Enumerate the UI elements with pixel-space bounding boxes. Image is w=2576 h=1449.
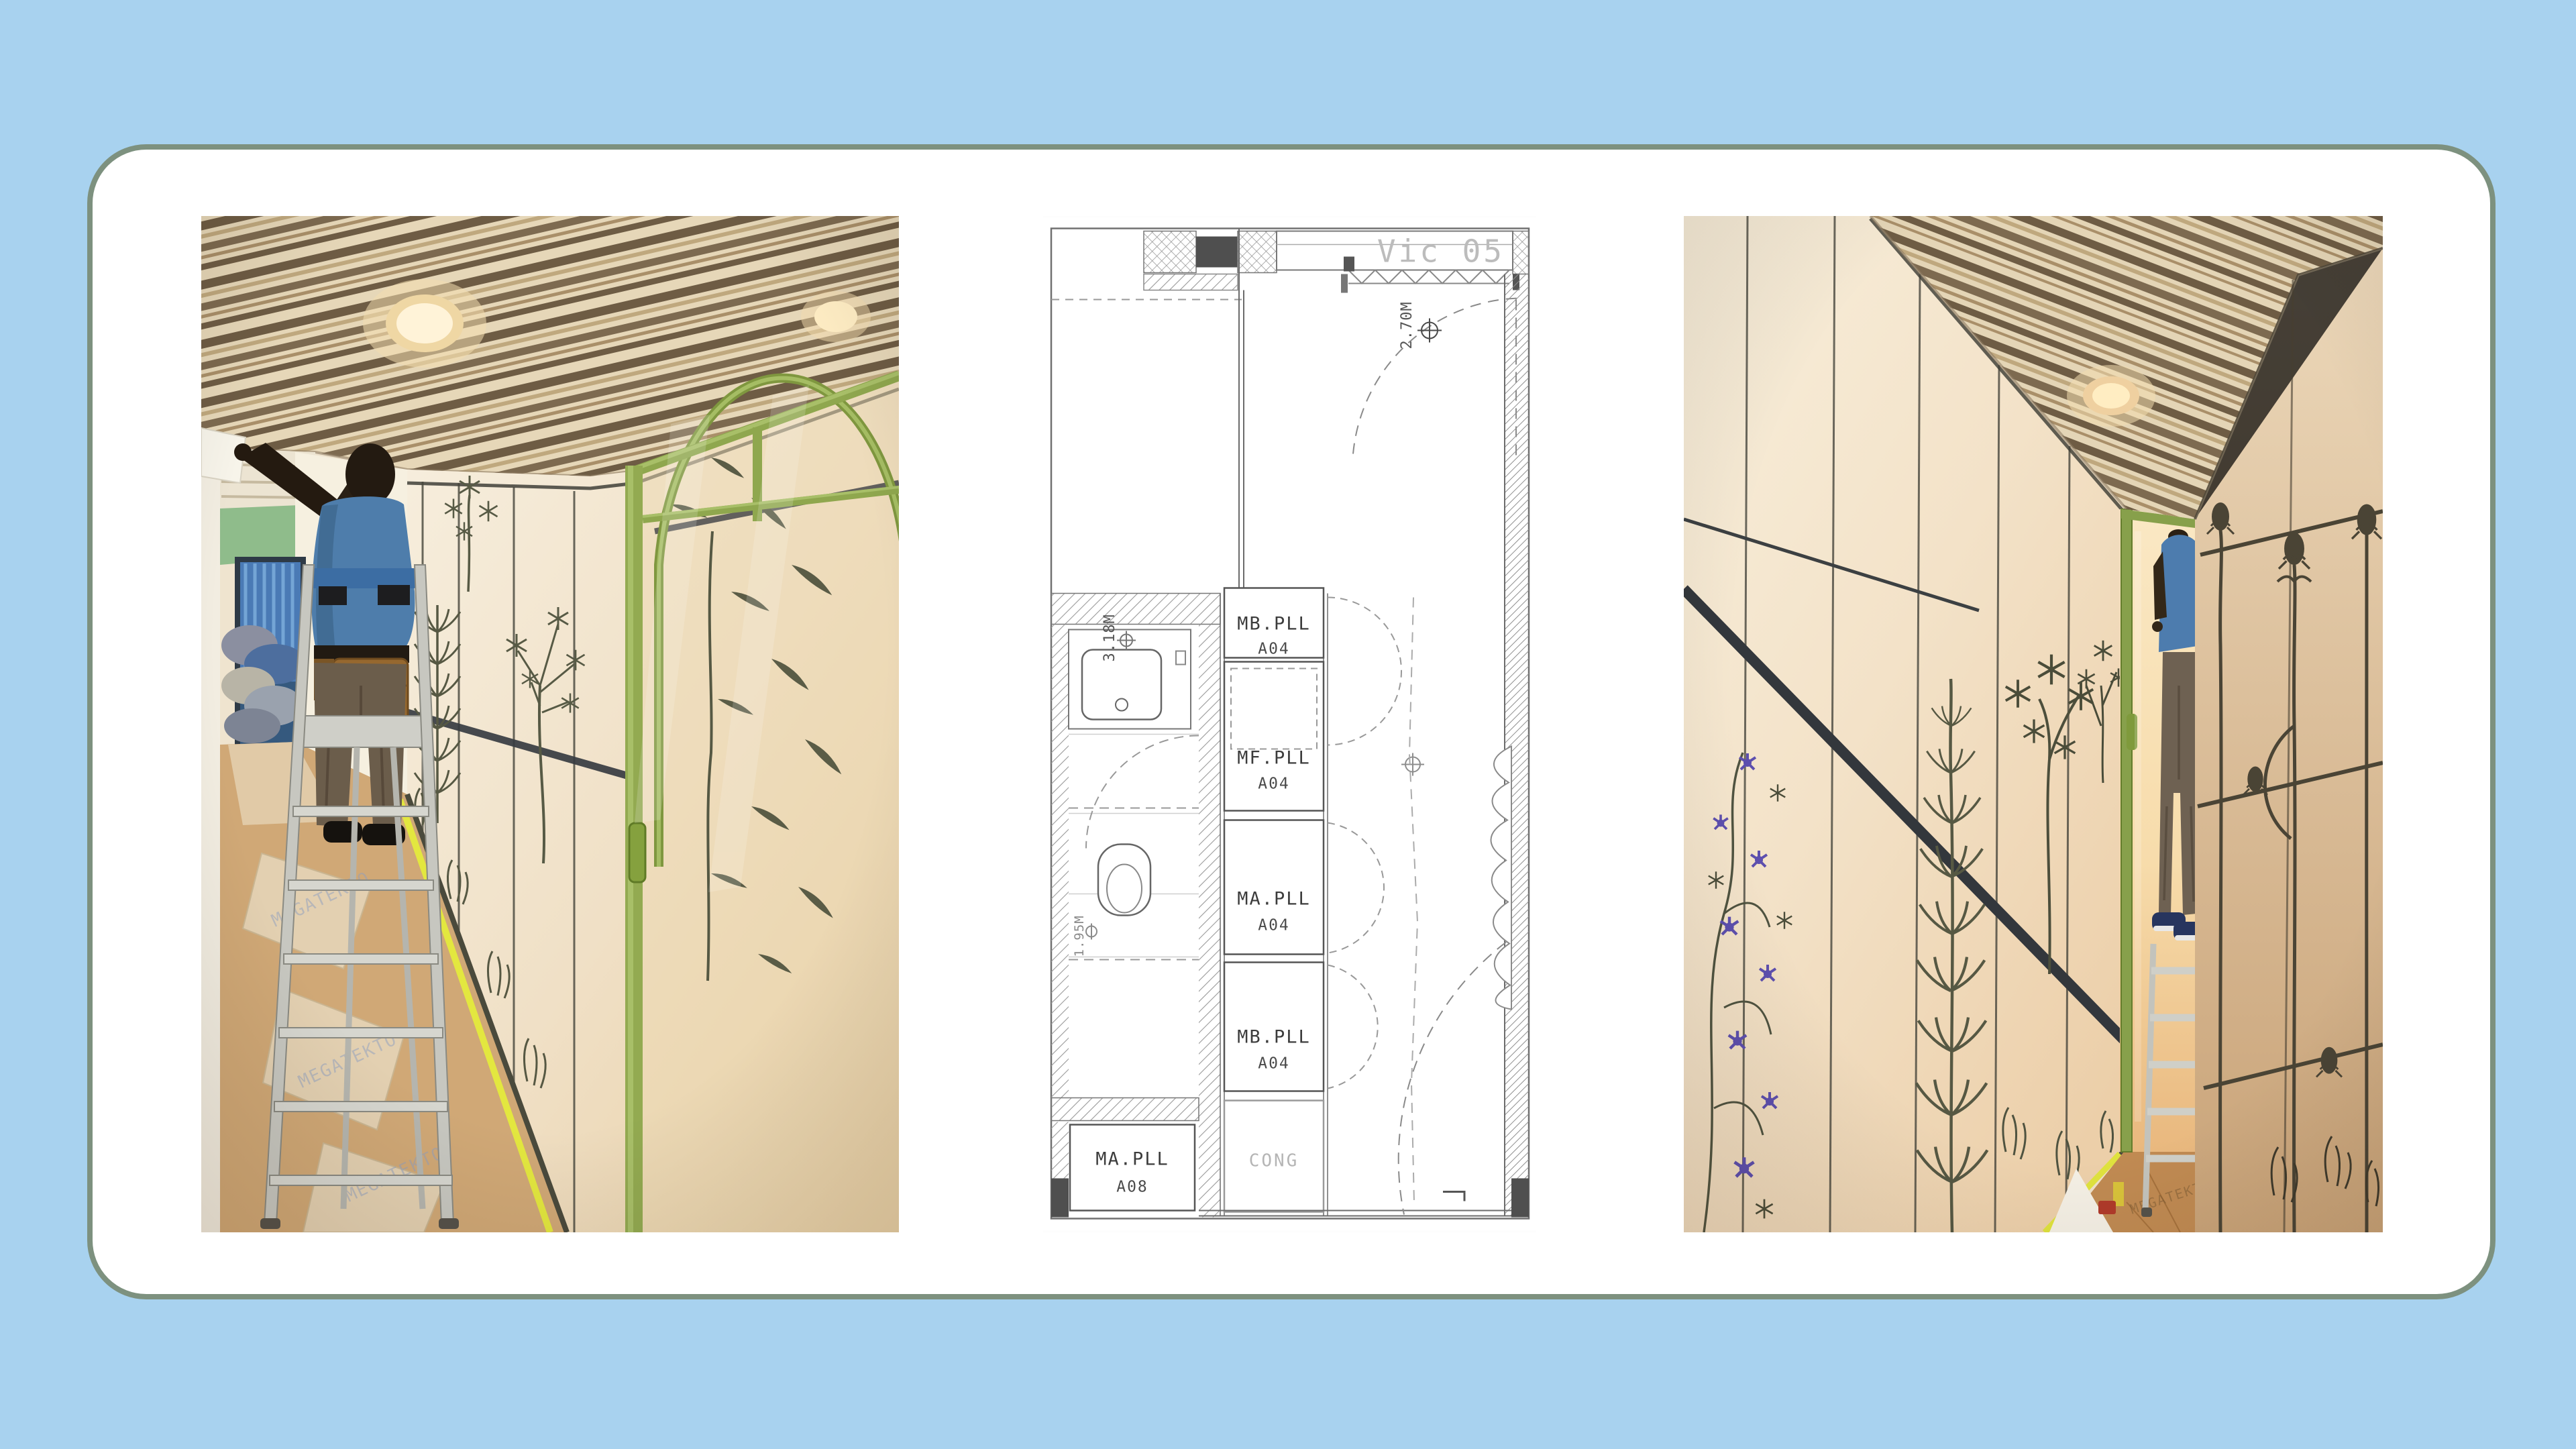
panel-boxes: MB.PLL A04 MF.PLL A04 MA.PLL A04 MB.PLL … bbox=[1220, 588, 1328, 1216]
room-tag: MA.PLL bbox=[1237, 889, 1311, 910]
room-tag: MF.PLL bbox=[1237, 748, 1311, 769]
column-block bbox=[1511, 1179, 1529, 1218]
vignette bbox=[201, 216, 899, 1232]
vignette bbox=[1684, 216, 2383, 1232]
room-tag: CONG bbox=[1249, 1151, 1299, 1171]
svg-text:2.70M: 2.70M bbox=[1399, 301, 1415, 349]
room-tag: MB.PLL bbox=[1237, 614, 1311, 635]
room-tag: MA.PLL bbox=[1095, 1149, 1169, 1170]
svg-text:1.95M: 1.95M bbox=[1072, 915, 1087, 957]
left-photo-illustration: MEGATEKTO MEGATEKTO MEGATEKTO bbox=[201, 216, 899, 1232]
room-tag: A08 bbox=[1116, 1179, 1148, 1196]
photo-hallway-installation-right: MEGATEKTO bbox=[1684, 216, 2383, 1232]
room-tag: A04 bbox=[1258, 775, 1290, 793]
unit-tag: Vic 05 bbox=[1377, 233, 1505, 270]
room-tag: A04 bbox=[1258, 641, 1290, 658]
floor-plan-svg: Vic 05 bbox=[1043, 216, 1536, 1232]
room-tag: A04 bbox=[1258, 917, 1290, 934]
floor-plan-drawing: Vic 05 bbox=[1043, 216, 1536, 1232]
sink bbox=[1082, 650, 1161, 720]
photo-hallway-installation-left: MEGATEKTO MEGATEKTO MEGATEKTO bbox=[201, 216, 899, 1232]
svg-text:3.18M: 3.18M bbox=[1102, 614, 1118, 661]
collage-card: MEGATEKTO MEGATEKTO MEGATEKTO bbox=[87, 144, 2495, 1299]
toilet bbox=[1098, 845, 1150, 916]
page-background: MEGATEKTO MEGATEKTO MEGATEKTO bbox=[0, 0, 2576, 1449]
room-tag: MB.PLL bbox=[1237, 1027, 1311, 1048]
right-photo-illustration: MEGATEKTO bbox=[1684, 216, 2383, 1232]
column-block bbox=[1051, 1179, 1069, 1218]
room-tag: A04 bbox=[1258, 1055, 1290, 1073]
